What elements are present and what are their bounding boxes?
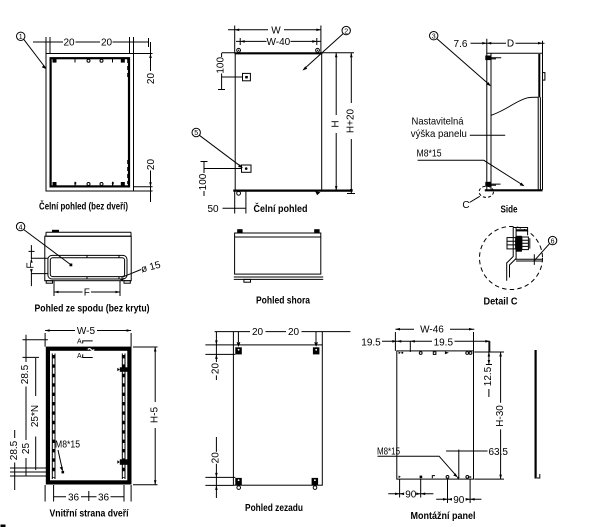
svg-text:50: 50 [207, 204, 219, 215]
svg-text:Side: Side [501, 204, 518, 216]
svg-text:W-40: W-40 [267, 37, 291, 48]
svg-text:Pohled zezadu: Pohled zezadu [245, 502, 303, 514]
svg-text:100: 100 [216, 57, 227, 74]
svg-text:H-5: H-5 [150, 407, 161, 424]
svg-text:19.5: 19.5 [361, 337, 381, 348]
svg-text:20: 20 [146, 73, 157, 85]
svg-text:20: 20 [211, 363, 222, 375]
svg-text:A: A [77, 339, 82, 346]
svg-text:W-46: W-46 [420, 325, 444, 336]
svg-text:1: 1 [19, 34, 23, 41]
svg-text:20: 20 [211, 452, 222, 464]
svg-text:D: D [507, 39, 514, 50]
svg-text:Čelní pohled: Čelní pohled [254, 202, 308, 215]
svg-text:63.5: 63.5 [488, 447, 508, 458]
svg-text:36: 36 [98, 492, 110, 503]
svg-text:Montážní panel: Montážní panel [411, 510, 476, 522]
svg-text:28.5: 28.5 [9, 440, 20, 460]
svg-text:6: 6 [551, 238, 555, 245]
svg-text:A: A [77, 353, 82, 360]
svg-text:36: 36 [68, 492, 80, 503]
svg-text:3: 3 [432, 33, 436, 40]
svg-text:M8*15: M8*15 [417, 149, 442, 160]
svg-text:4: 4 [19, 224, 23, 231]
svg-text:W: W [271, 25, 281, 36]
svg-text:Detail C: Detail C [484, 296, 518, 308]
svg-text:2: 2 [344, 28, 348, 35]
svg-text:Čelní pohled (bez dveří): Čelní pohled (bez dveří) [39, 200, 128, 213]
svg-text:Pohled shora: Pohled shora [256, 294, 310, 306]
svg-text:100: 100 [198, 173, 209, 190]
svg-text:20: 20 [63, 38, 75, 49]
svg-text:H: H [331, 120, 342, 127]
svg-text:C: C [462, 200, 469, 211]
svg-text:Nastavitelná: Nastavitelná [412, 116, 464, 128]
svg-text:W-5: W-5 [77, 326, 96, 337]
svg-text:20: 20 [101, 38, 113, 49]
svg-text:výška panelu: výška panelu [411, 128, 467, 140]
svg-text:20: 20 [146, 159, 157, 171]
svg-text:12.5: 12.5 [483, 366, 494, 386]
svg-text:7.6: 7.6 [454, 39, 468, 50]
svg-text:20: 20 [288, 327, 300, 338]
svg-text:F: F [26, 262, 37, 268]
svg-text:90: 90 [453, 495, 465, 506]
svg-text:H-30: H-30 [495, 405, 506, 427]
svg-text:M8*15: M8*15 [55, 440, 80, 451]
svg-text:28.5: 28.5 [20, 364, 31, 384]
svg-text:Pohled ze spodu (bez krytu): Pohled ze spodu (bez krytu) [35, 303, 150, 315]
svg-text:Vnitřní strana dveří: Vnitřní strana dveří [50, 508, 130, 520]
svg-text:25: 25 [21, 443, 32, 455]
svg-text:F: F [84, 287, 90, 298]
svg-text:19.5: 19.5 [434, 337, 454, 348]
svg-text:H+20: H+20 [346, 108, 357, 133]
svg-text:5: 5 [194, 130, 198, 137]
svg-text:20: 20 [252, 327, 264, 338]
svg-text:25*N: 25*N [30, 405, 41, 427]
svg-text:90: 90 [405, 489, 417, 500]
